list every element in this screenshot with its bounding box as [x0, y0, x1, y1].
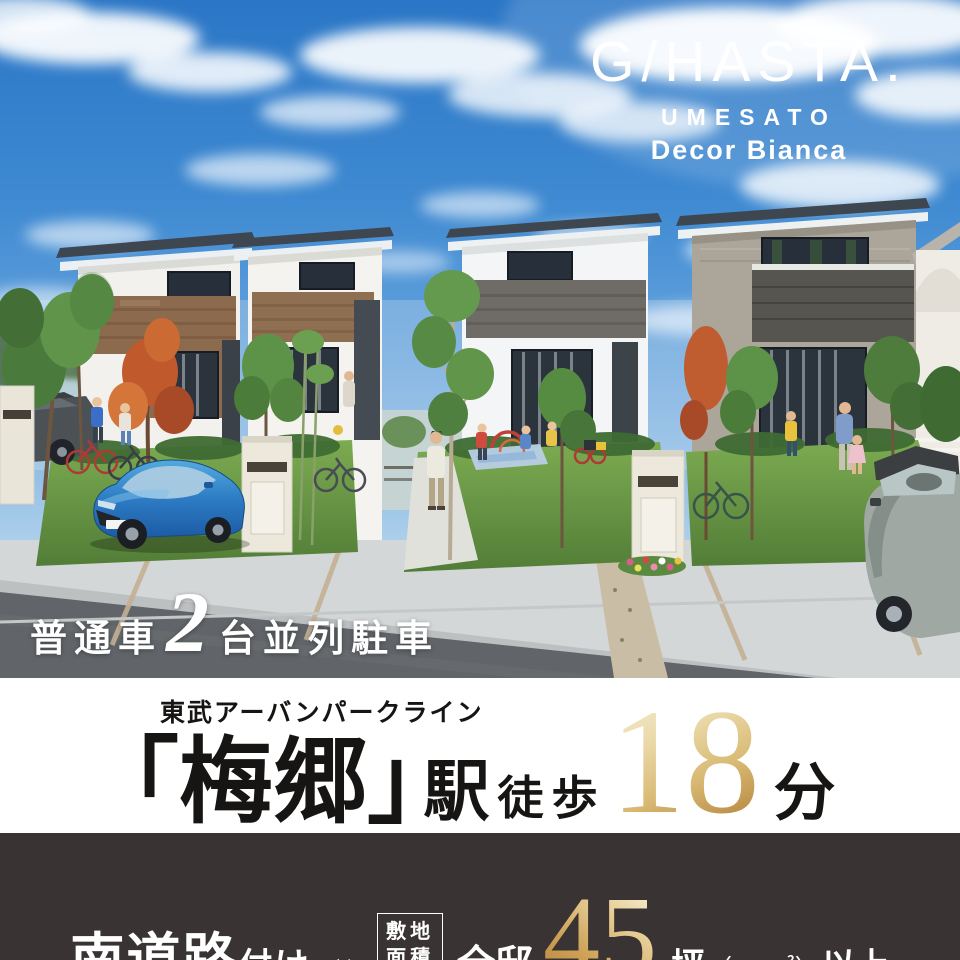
minutes-unit: 分: [774, 763, 836, 825]
site-area-label-line2: 面積: [386, 945, 434, 960]
flowers: [618, 556, 686, 576]
station-bracket-open: 「: [85, 736, 179, 830]
walk-minutes: 18: [610, 702, 760, 814]
real-estate-ad-poster: G/HASTA. UMESATO Decor Bianca 普通車 2 台並列駐…: [0, 0, 960, 960]
mail-pillar-2: [242, 436, 292, 552]
entrance: [612, 342, 638, 442]
parking-caption: 普通車 2 台並列駐車: [30, 588, 439, 662]
balcony-brick: [752, 270, 914, 342]
road-suffix: 付け: [238, 950, 310, 960]
gray-car: [864, 446, 960, 638]
ball: [333, 425, 343, 435]
side-mirror: [204, 482, 213, 488]
upper-window: [168, 272, 230, 298]
upper-window: [508, 252, 572, 280]
upper-window: [300, 263, 354, 289]
balcony-rail: [752, 264, 914, 270]
station-suffix: 駅: [424, 760, 490, 826]
neighbor-building: [912, 222, 960, 480]
all-residences-label: 全邸: [457, 946, 533, 960]
brand-location: UMESATO: [556, 106, 942, 129]
parking-label: 台並列駐車: [219, 608, 439, 662]
person-child-yellow-center: [546, 422, 557, 447]
exterior-photo: G/HASTA. UMESATO Decor Bianca 普通車 2 台並列駐…: [0, 0, 960, 678]
station-access-row: 「梅郷」 駅 徒歩 18 分: [0, 702, 960, 830]
entrance: [354, 300, 380, 440]
person-child-blue2: [520, 426, 531, 450]
walk-label: 徒歩: [498, 776, 606, 822]
person-woman-porch: [343, 371, 355, 407]
brand-name: G/HASTA.: [556, 34, 942, 91]
side-mirror: [870, 498, 881, 506]
parking-count: 2: [166, 588, 209, 657]
multiply-sign: ×: [334, 950, 353, 960]
mail-pillar-3: [632, 450, 684, 568]
walk-minutes-figure: 18: [610, 702, 770, 814]
station-access-section: 東武アーバンパークライン 「梅郷」 駅 徒歩 18 分: [0, 678, 960, 833]
features-section: 南道路 付け × 敷地 面積 全邸 45 坪 （150㎡） 以上: [0, 833, 960, 960]
area-value: 45: [543, 891, 657, 960]
parking-vehicle-type: 普通車: [30, 608, 162, 662]
tsubo-unit: 坪: [671, 950, 705, 960]
mail-pillar-1: [0, 386, 34, 504]
minimum-suffix: 以上: [822, 950, 890, 960]
site-area-label-line1: 敷地: [386, 919, 434, 945]
station-name: 梅郷: [179, 736, 367, 830]
features-row: 南道路 付け × 敷地 面積 全邸 45 坪 （150㎡） 以上: [70, 891, 889, 960]
area-value-figure: 45: [543, 891, 663, 960]
brand-logo: G/HASTA. UMESATO Decor Bianca: [556, 34, 942, 164]
site-area-label-box: 敷地 面積: [377, 913, 443, 960]
road-direction: 南道路: [70, 932, 238, 960]
brand-series: Decor Bianca: [556, 137, 942, 164]
